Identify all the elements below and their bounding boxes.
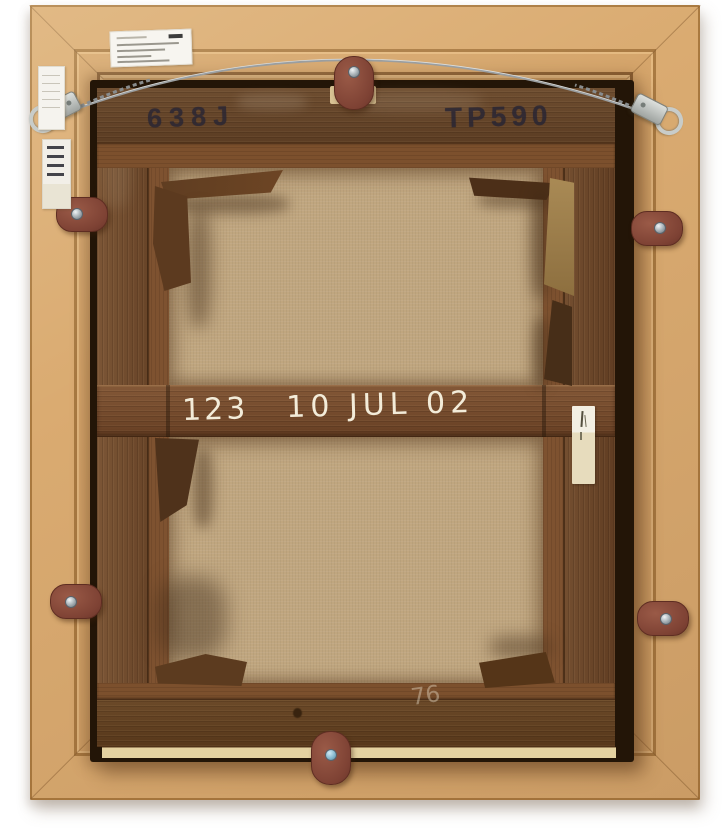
label-right-stretcher bbox=[572, 406, 595, 484]
photo-of-framed-painting-verso: 638J TP590 76 123 10 JUL 02 bbox=[0, 0, 723, 828]
label-barcode-row bbox=[47, 173, 64, 176]
chalk-date: 10 JUL 02 bbox=[286, 385, 475, 425]
chalk-mark-bottom: 76 bbox=[409, 681, 442, 711]
label-handwriting-mark bbox=[580, 432, 582, 440]
crossbar-joint-left bbox=[166, 385, 170, 437]
turn-button-right-upper bbox=[631, 211, 683, 246]
stretcher-lip-top bbox=[97, 142, 615, 168]
label-text-line bbox=[117, 59, 169, 63]
key-shadow bbox=[187, 208, 211, 328]
label-blank-area bbox=[43, 184, 70, 208]
label-text-line bbox=[42, 83, 60, 84]
label-barcode-row bbox=[47, 155, 64, 158]
screw-icon bbox=[71, 208, 83, 220]
screw-icon bbox=[660, 613, 672, 625]
stretcher-lip-bottom bbox=[97, 683, 615, 700]
label-left-edge-upper bbox=[38, 66, 65, 130]
chalk-inscription-row: 123 10 JUL 02 bbox=[182, 385, 475, 428]
label-text-line bbox=[42, 91, 60, 92]
filler-slat-bottom bbox=[102, 747, 616, 758]
label-barcode-row bbox=[47, 146, 64, 149]
label-text-line bbox=[117, 49, 165, 53]
label-handwriting-mark bbox=[584, 415, 586, 427]
turn-button-bottom-center bbox=[311, 731, 351, 785]
screw-icon bbox=[65, 596, 77, 608]
label-text-line bbox=[117, 36, 147, 39]
wood-knot bbox=[293, 708, 302, 718]
key-shadow bbox=[193, 448, 213, 528]
paint-smudge bbox=[237, 94, 307, 110]
screw-icon bbox=[325, 749, 337, 761]
turn-button-top-center bbox=[334, 56, 374, 110]
label-text-line bbox=[42, 75, 60, 76]
stamp-number-left: 638J bbox=[146, 100, 235, 134]
label-logo-mark bbox=[169, 34, 183, 38]
label-text-line bbox=[117, 55, 151, 58]
stretcher-crossbar: 123 10 JUL 02 bbox=[97, 385, 615, 437]
label-text-line bbox=[42, 107, 60, 108]
turn-button-left-middle bbox=[50, 584, 102, 619]
label-barcode-row bbox=[47, 164, 64, 167]
canvas-lower bbox=[169, 437, 543, 683]
screw-icon bbox=[348, 66, 360, 78]
stretcher-bar-bottom: 76 bbox=[97, 683, 615, 747]
label-handwriting-mark bbox=[580, 411, 583, 427]
canvas-stretcher: 638J TP590 76 123 10 JUL 02 bbox=[97, 88, 615, 747]
label-text-line bbox=[42, 99, 60, 100]
key-shadow bbox=[157, 576, 227, 660]
stamp-number-right: TP590 bbox=[445, 100, 553, 135]
turn-button-right-middle bbox=[637, 601, 689, 636]
label-top-frame bbox=[109, 29, 192, 68]
screw-icon bbox=[654, 222, 666, 234]
label-text-line bbox=[117, 42, 179, 46]
label-left-edge-lower bbox=[42, 139, 71, 209]
chalk-lot-number: 123 bbox=[182, 391, 249, 428]
crossbar-joint-right bbox=[542, 385, 546, 437]
